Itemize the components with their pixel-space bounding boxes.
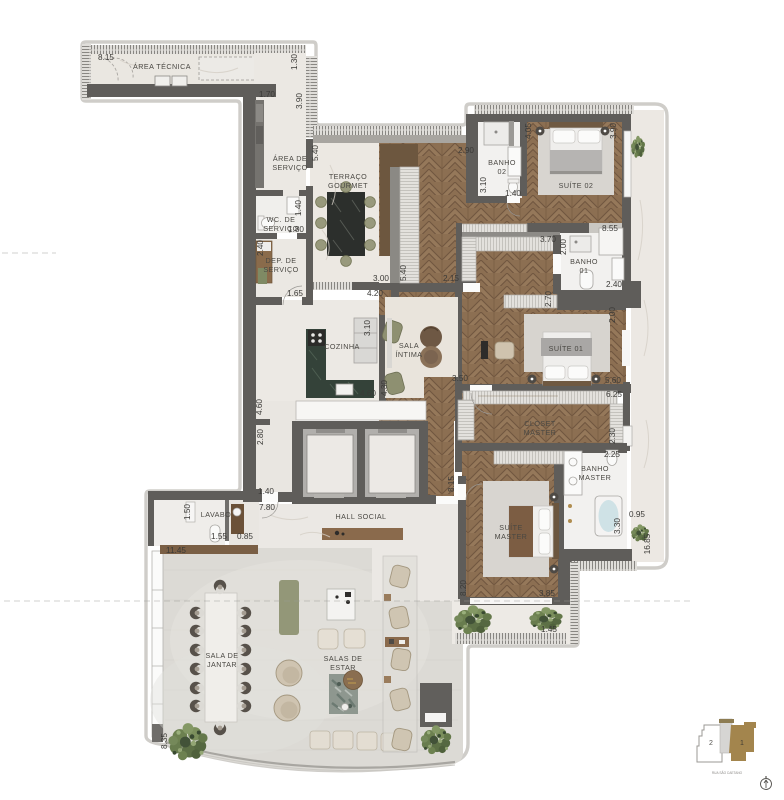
svg-text:1.70: 1.70 (259, 90, 275, 99)
svg-text:8.15: 8.15 (98, 53, 114, 62)
svg-text:2.40: 2.40 (606, 280, 622, 289)
svg-text:01: 01 (580, 266, 589, 275)
svg-text:4.30: 4.30 (380, 380, 389, 396)
svg-text:3.00: 3.00 (373, 274, 389, 283)
svg-text:1.30: 1.30 (290, 54, 299, 70)
svg-text:02: 02 (498, 167, 507, 176)
svg-text:3.90: 3.90 (295, 93, 304, 109)
svg-text:SALAS DE: SALAS DE (324, 654, 363, 663)
svg-text:COZINHA: COZINHA (324, 342, 360, 351)
svg-text:JANTAR: JANTAR (207, 660, 237, 669)
svg-text:SERVIÇO: SERVIÇO (263, 265, 298, 274)
svg-text:MASTER: MASTER (524, 428, 557, 437)
svg-text:GOURMET: GOURMET (328, 181, 368, 190)
svg-text:1.65: 1.65 (287, 289, 303, 298)
svg-text:8.55: 8.55 (602, 224, 618, 233)
svg-text:CLOSET: CLOSET (524, 419, 556, 428)
svg-text:7.80: 7.80 (259, 503, 275, 512)
svg-text:3.50: 3.50 (452, 374, 468, 383)
svg-text:BANHO: BANHO (570, 257, 598, 266)
svg-text:1.45: 1.45 (541, 625, 557, 634)
svg-text:4.60: 4.60 (360, 389, 376, 398)
svg-text:4.60: 4.60 (255, 399, 264, 415)
svg-text:3.10: 3.10 (479, 177, 488, 193)
svg-text:6.25: 6.25 (606, 390, 622, 399)
svg-text:ÍNTIMA: ÍNTIMA (395, 350, 422, 359)
svg-text:0.95: 0.95 (629, 510, 645, 519)
svg-text:5.60: 5.60 (605, 376, 621, 385)
svg-text:1.80: 1.80 (288, 225, 304, 234)
svg-text:2.40: 2.40 (256, 240, 265, 256)
svg-text:SALA: SALA (399, 341, 419, 350)
svg-text:SUÍTE: SUÍTE (499, 523, 522, 532)
svg-text:3.85: 3.85 (539, 589, 555, 598)
svg-text:1.50: 1.50 (183, 504, 192, 520)
svg-text:TERRAÇO: TERRAÇO (329, 172, 367, 181)
svg-text:16.85: 16.85 (643, 533, 652, 554)
svg-text:SERVIÇO: SERVIÇO (272, 163, 307, 172)
svg-text:RUA SÃO CAETANO: RUA SÃO CAETANO (712, 770, 743, 775)
svg-text:SUÍTE 01: SUÍTE 01 (549, 344, 584, 353)
svg-text:2.90: 2.90 (458, 146, 474, 155)
svg-text:1.55: 1.55 (211, 532, 227, 541)
svg-text:4.05: 4.05 (524, 123, 533, 139)
svg-text:5.40: 5.40 (311, 145, 320, 161)
svg-text:2.30: 2.30 (608, 428, 617, 444)
svg-text:MASTER: MASTER (495, 532, 528, 541)
svg-text:BANHO: BANHO (488, 158, 516, 167)
svg-text:3.70: 3.70 (540, 235, 556, 244)
svg-text:HALL SOCIAL: HALL SOCIAL (335, 512, 386, 521)
svg-text:SUÍTE 02: SUÍTE 02 (559, 181, 594, 190)
svg-text:1.40: 1.40 (505, 189, 521, 198)
svg-text:2: 2 (709, 740, 713, 747)
svg-text:2.25: 2.25 (604, 450, 620, 459)
svg-text:3.30: 3.30 (613, 518, 622, 534)
svg-text:3.10: 3.10 (363, 320, 372, 336)
svg-text:2.70: 2.70 (544, 291, 553, 307)
svg-text:0.85: 0.85 (237, 532, 253, 541)
svg-text:2.15: 2.15 (443, 274, 459, 283)
svg-text:2.00: 2.00 (608, 307, 617, 323)
svg-text:1: 1 (740, 740, 744, 747)
svg-text:8.35: 8.35 (160, 733, 169, 749)
svg-text:4.20: 4.20 (367, 289, 383, 298)
svg-text:ÁREA DE: ÁREA DE (273, 154, 307, 163)
svg-text:DEP. DE: DEP. DE (266, 256, 297, 265)
svg-text:1.40: 1.40 (258, 487, 274, 496)
svg-text:ESTAR: ESTAR (330, 663, 356, 672)
svg-text:BANHO: BANHO (581, 464, 609, 473)
svg-text:8.15: 8.15 (447, 476, 456, 492)
svg-text:SALA DE: SALA DE (205, 651, 238, 660)
svg-text:LAVABO: LAVABO (201, 510, 231, 519)
svg-text:11.45: 11.45 (166, 546, 186, 555)
svg-text:2.00: 2.00 (559, 239, 568, 255)
svg-text:3.90: 3.90 (609, 123, 618, 139)
svg-text:1.40: 1.40 (294, 200, 303, 216)
svg-text:8.20: 8.20 (459, 580, 468, 596)
svg-text:ÁREA TÉCNICA: ÁREA TÉCNICA (133, 62, 191, 71)
svg-text:5.40: 5.40 (399, 265, 408, 281)
svg-text:2.80: 2.80 (256, 429, 265, 445)
svg-text:WC. DE: WC. DE (267, 215, 296, 224)
svg-text:MASTER: MASTER (579, 473, 612, 482)
